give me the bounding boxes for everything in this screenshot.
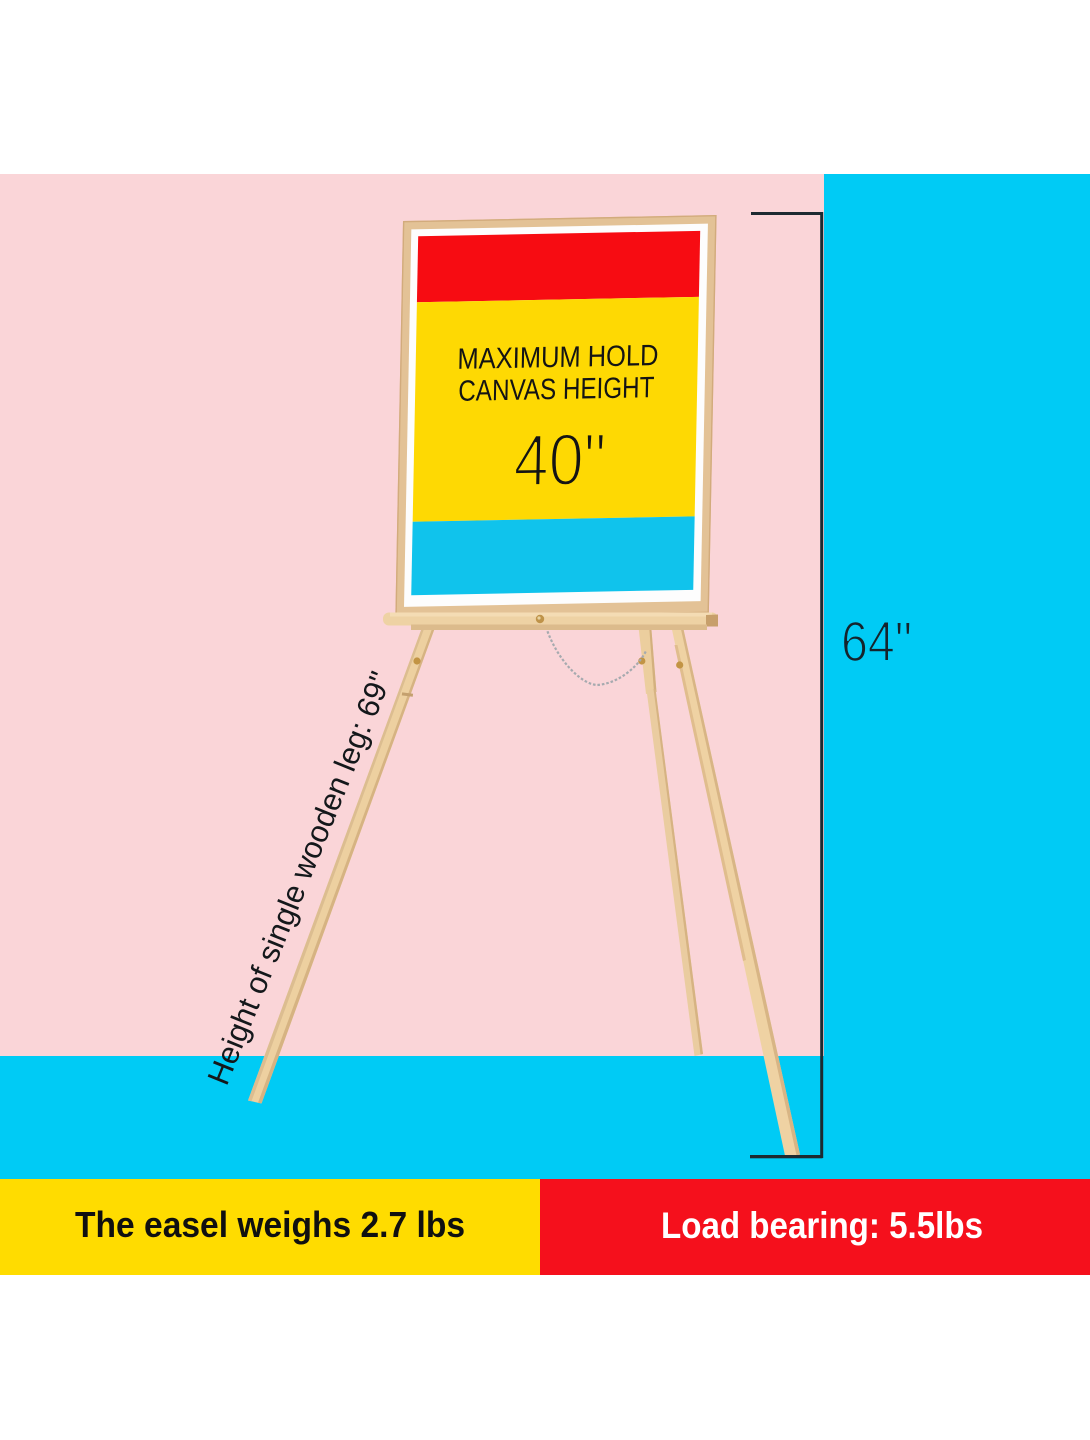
svg-text:CANVAS HEIGHT: CANVAS HEIGHT — [458, 371, 655, 408]
svg-text:MAXIMUM HOLD: MAXIMUM HOLD — [457, 339, 659, 376]
svg-text:Load bearing: 5.5lbs: Load bearing: 5.5lbs — [661, 1205, 983, 1246]
svg-text:64": 64" — [841, 610, 912, 674]
svg-text:The easel weighs 2.7 lbs: The easel weighs 2.7 lbs — [75, 1204, 465, 1245]
svg-text:40": 40" — [513, 419, 607, 502]
